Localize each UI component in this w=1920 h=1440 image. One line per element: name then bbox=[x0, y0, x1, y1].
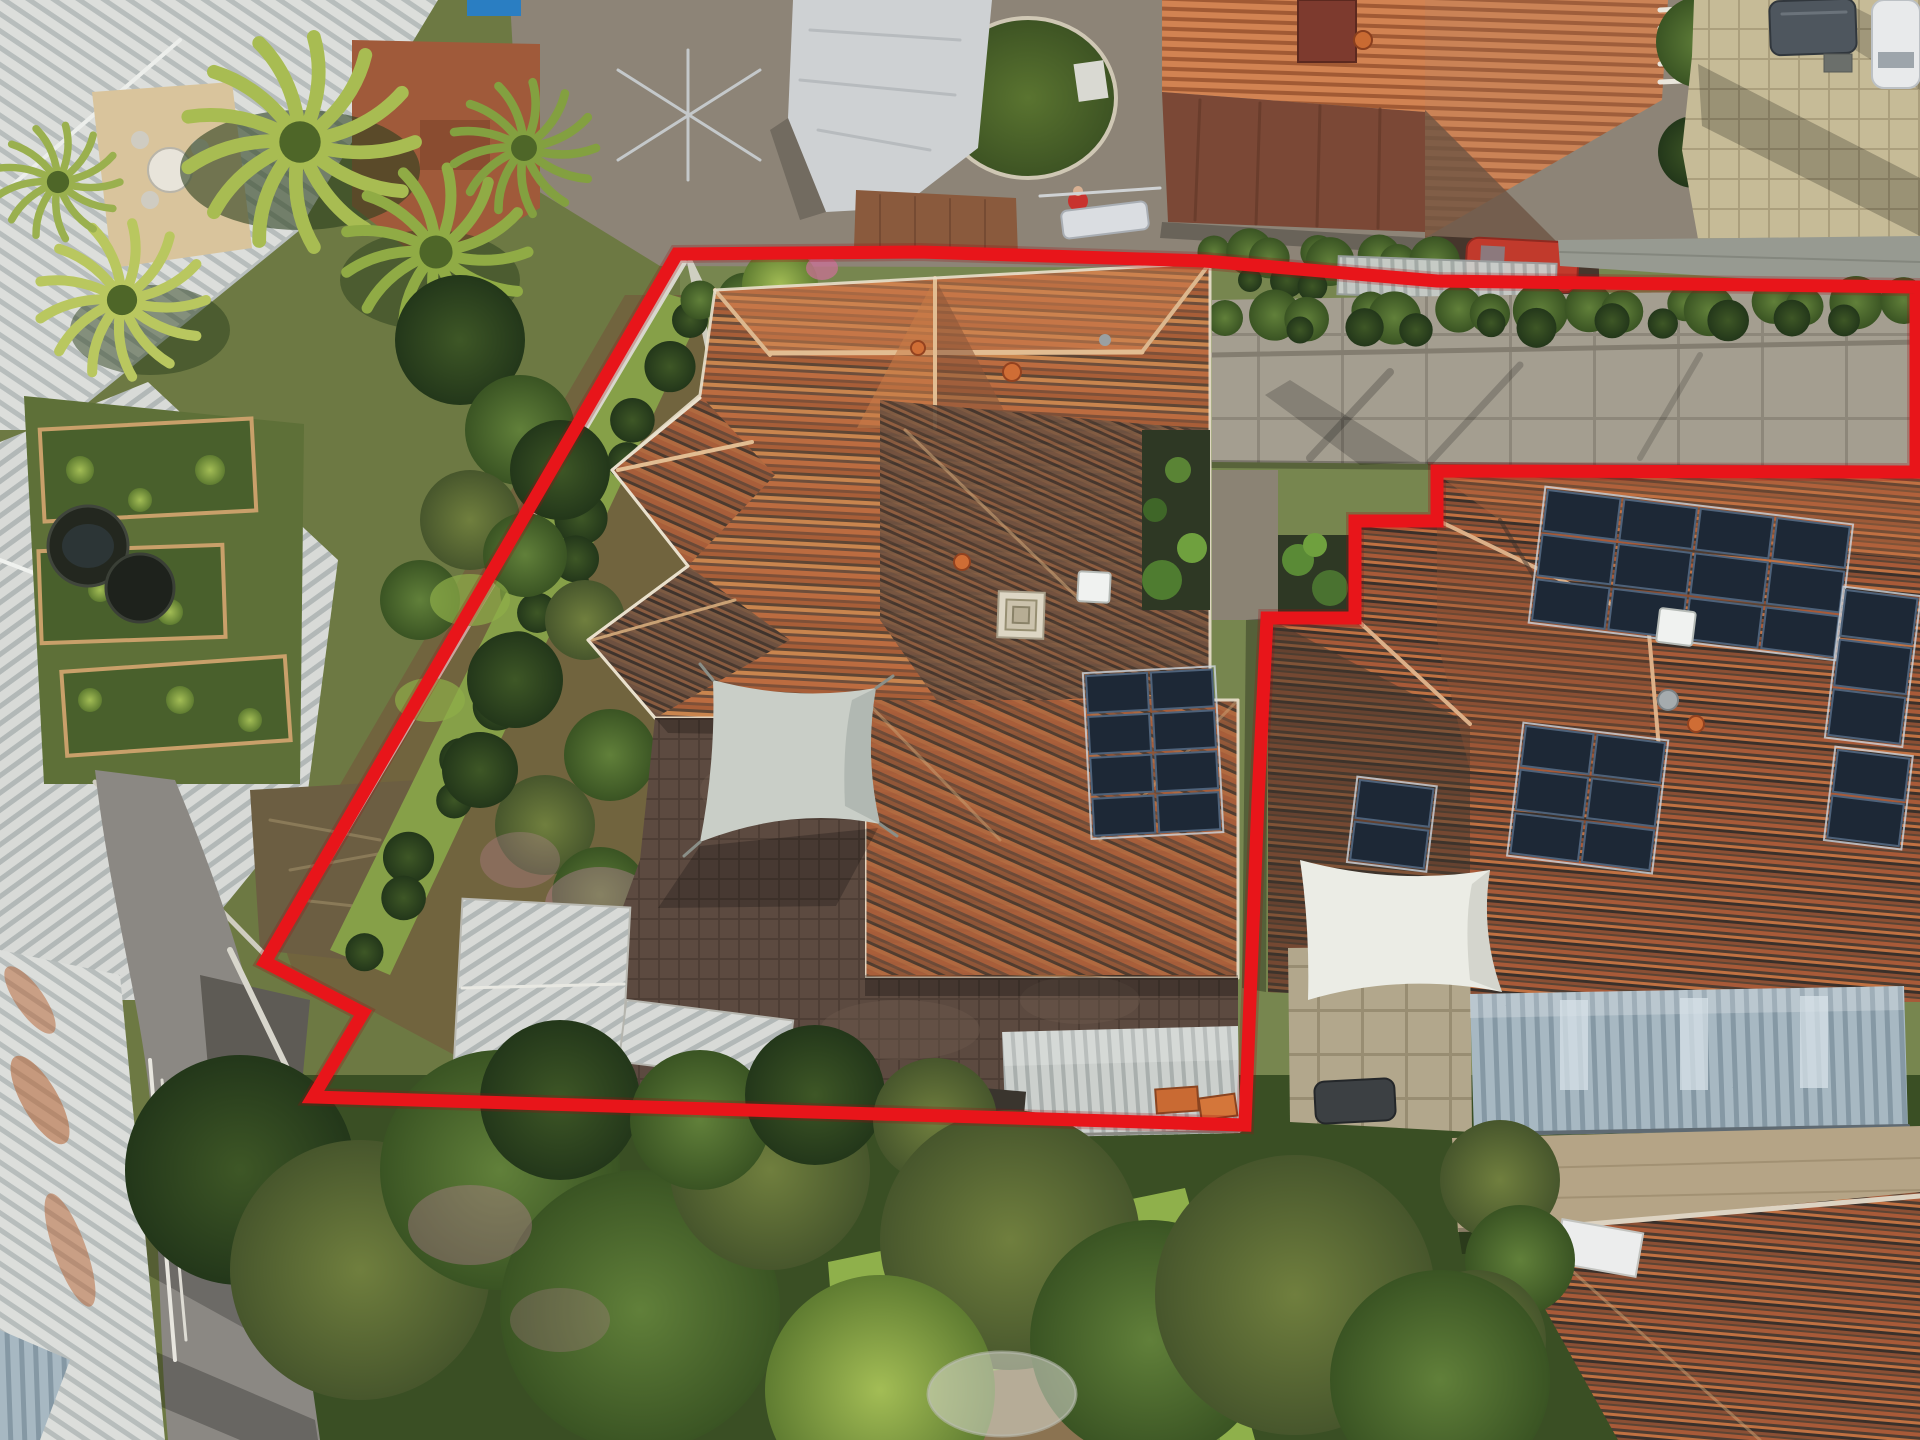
flowering-canopy-1 bbox=[408, 1185, 532, 1265]
right-skylight bbox=[1656, 608, 1696, 646]
right-spa-tub bbox=[1314, 1078, 1396, 1124]
courtyard1-plant-4 bbox=[1143, 498, 1167, 522]
courtyard1-plant-1 bbox=[1142, 560, 1182, 600]
veggie-6 bbox=[78, 688, 102, 712]
west-shrub-4 bbox=[467, 632, 563, 728]
bottom-tree-8 bbox=[745, 1025, 885, 1165]
leanto-highlight bbox=[1002, 1026, 1238, 1066]
veggie-7 bbox=[166, 686, 194, 714]
rose-garden-pink-2 bbox=[480, 832, 560, 888]
east-wall-strip bbox=[1212, 470, 1278, 620]
right-roof-vent bbox=[1658, 690, 1678, 710]
leanto-skylight-strip-1 bbox=[1560, 1000, 1588, 1090]
aerial-photo-stage bbox=[0, 0, 1920, 1440]
west-shrub-7 bbox=[442, 732, 518, 808]
suv-roof-rack bbox=[1782, 12, 1846, 14]
courtyard1-plant-3 bbox=[1165, 457, 1191, 483]
subject-skylight bbox=[1077, 571, 1111, 603]
north-chimney-pot bbox=[1354, 31, 1372, 49]
leanto-skylight-strip-2 bbox=[1680, 998, 1708, 1090]
lower-eave-shadow bbox=[865, 975, 1238, 996]
north-house-dark-roof bbox=[1162, 92, 1425, 232]
leanto-skylight-strip-3 bbox=[1800, 996, 1828, 1088]
aerial-drone-photo bbox=[0, 0, 1920, 1440]
white-car-windshield bbox=[1878, 52, 1914, 68]
chimney-pot-1 bbox=[1003, 363, 1021, 381]
tub-water bbox=[62, 524, 114, 568]
dark-suv bbox=[1769, 0, 1857, 55]
bottom-tree-7 bbox=[630, 1050, 770, 1190]
veggie-2 bbox=[128, 488, 152, 512]
west-shrub-5 bbox=[564, 709, 656, 801]
veggie-8 bbox=[238, 708, 262, 732]
courtyard2-plant-2 bbox=[1312, 570, 1348, 606]
tile-stack-1 bbox=[1155, 1087, 1199, 1114]
drain-grate bbox=[1824, 54, 1852, 72]
chimney-pot-3 bbox=[911, 341, 925, 355]
veggie-3 bbox=[195, 455, 225, 485]
flowering-canopy-2 bbox=[510, 1288, 610, 1352]
chimney-pot-2 bbox=[954, 554, 970, 570]
patio-chair-1 bbox=[131, 131, 149, 149]
north-roof-streak-4 bbox=[1378, 109, 1380, 228]
pyramid-vent-inner bbox=[1013, 607, 1030, 624]
roof-vent-small bbox=[1099, 334, 1111, 346]
north-house-chimney bbox=[1298, 0, 1356, 62]
lawn-object bbox=[1074, 60, 1109, 102]
veggie-1 bbox=[66, 456, 94, 484]
black-tub-2 bbox=[106, 554, 174, 622]
courtyard2-plant-3 bbox=[1303, 533, 1327, 557]
white-car bbox=[1872, 0, 1920, 88]
blue-tarp-item bbox=[467, 0, 521, 16]
courtyard1-plant-2 bbox=[1177, 533, 1207, 563]
right-chimney-pot bbox=[1688, 716, 1704, 732]
patio-chair-3 bbox=[141, 191, 159, 209]
